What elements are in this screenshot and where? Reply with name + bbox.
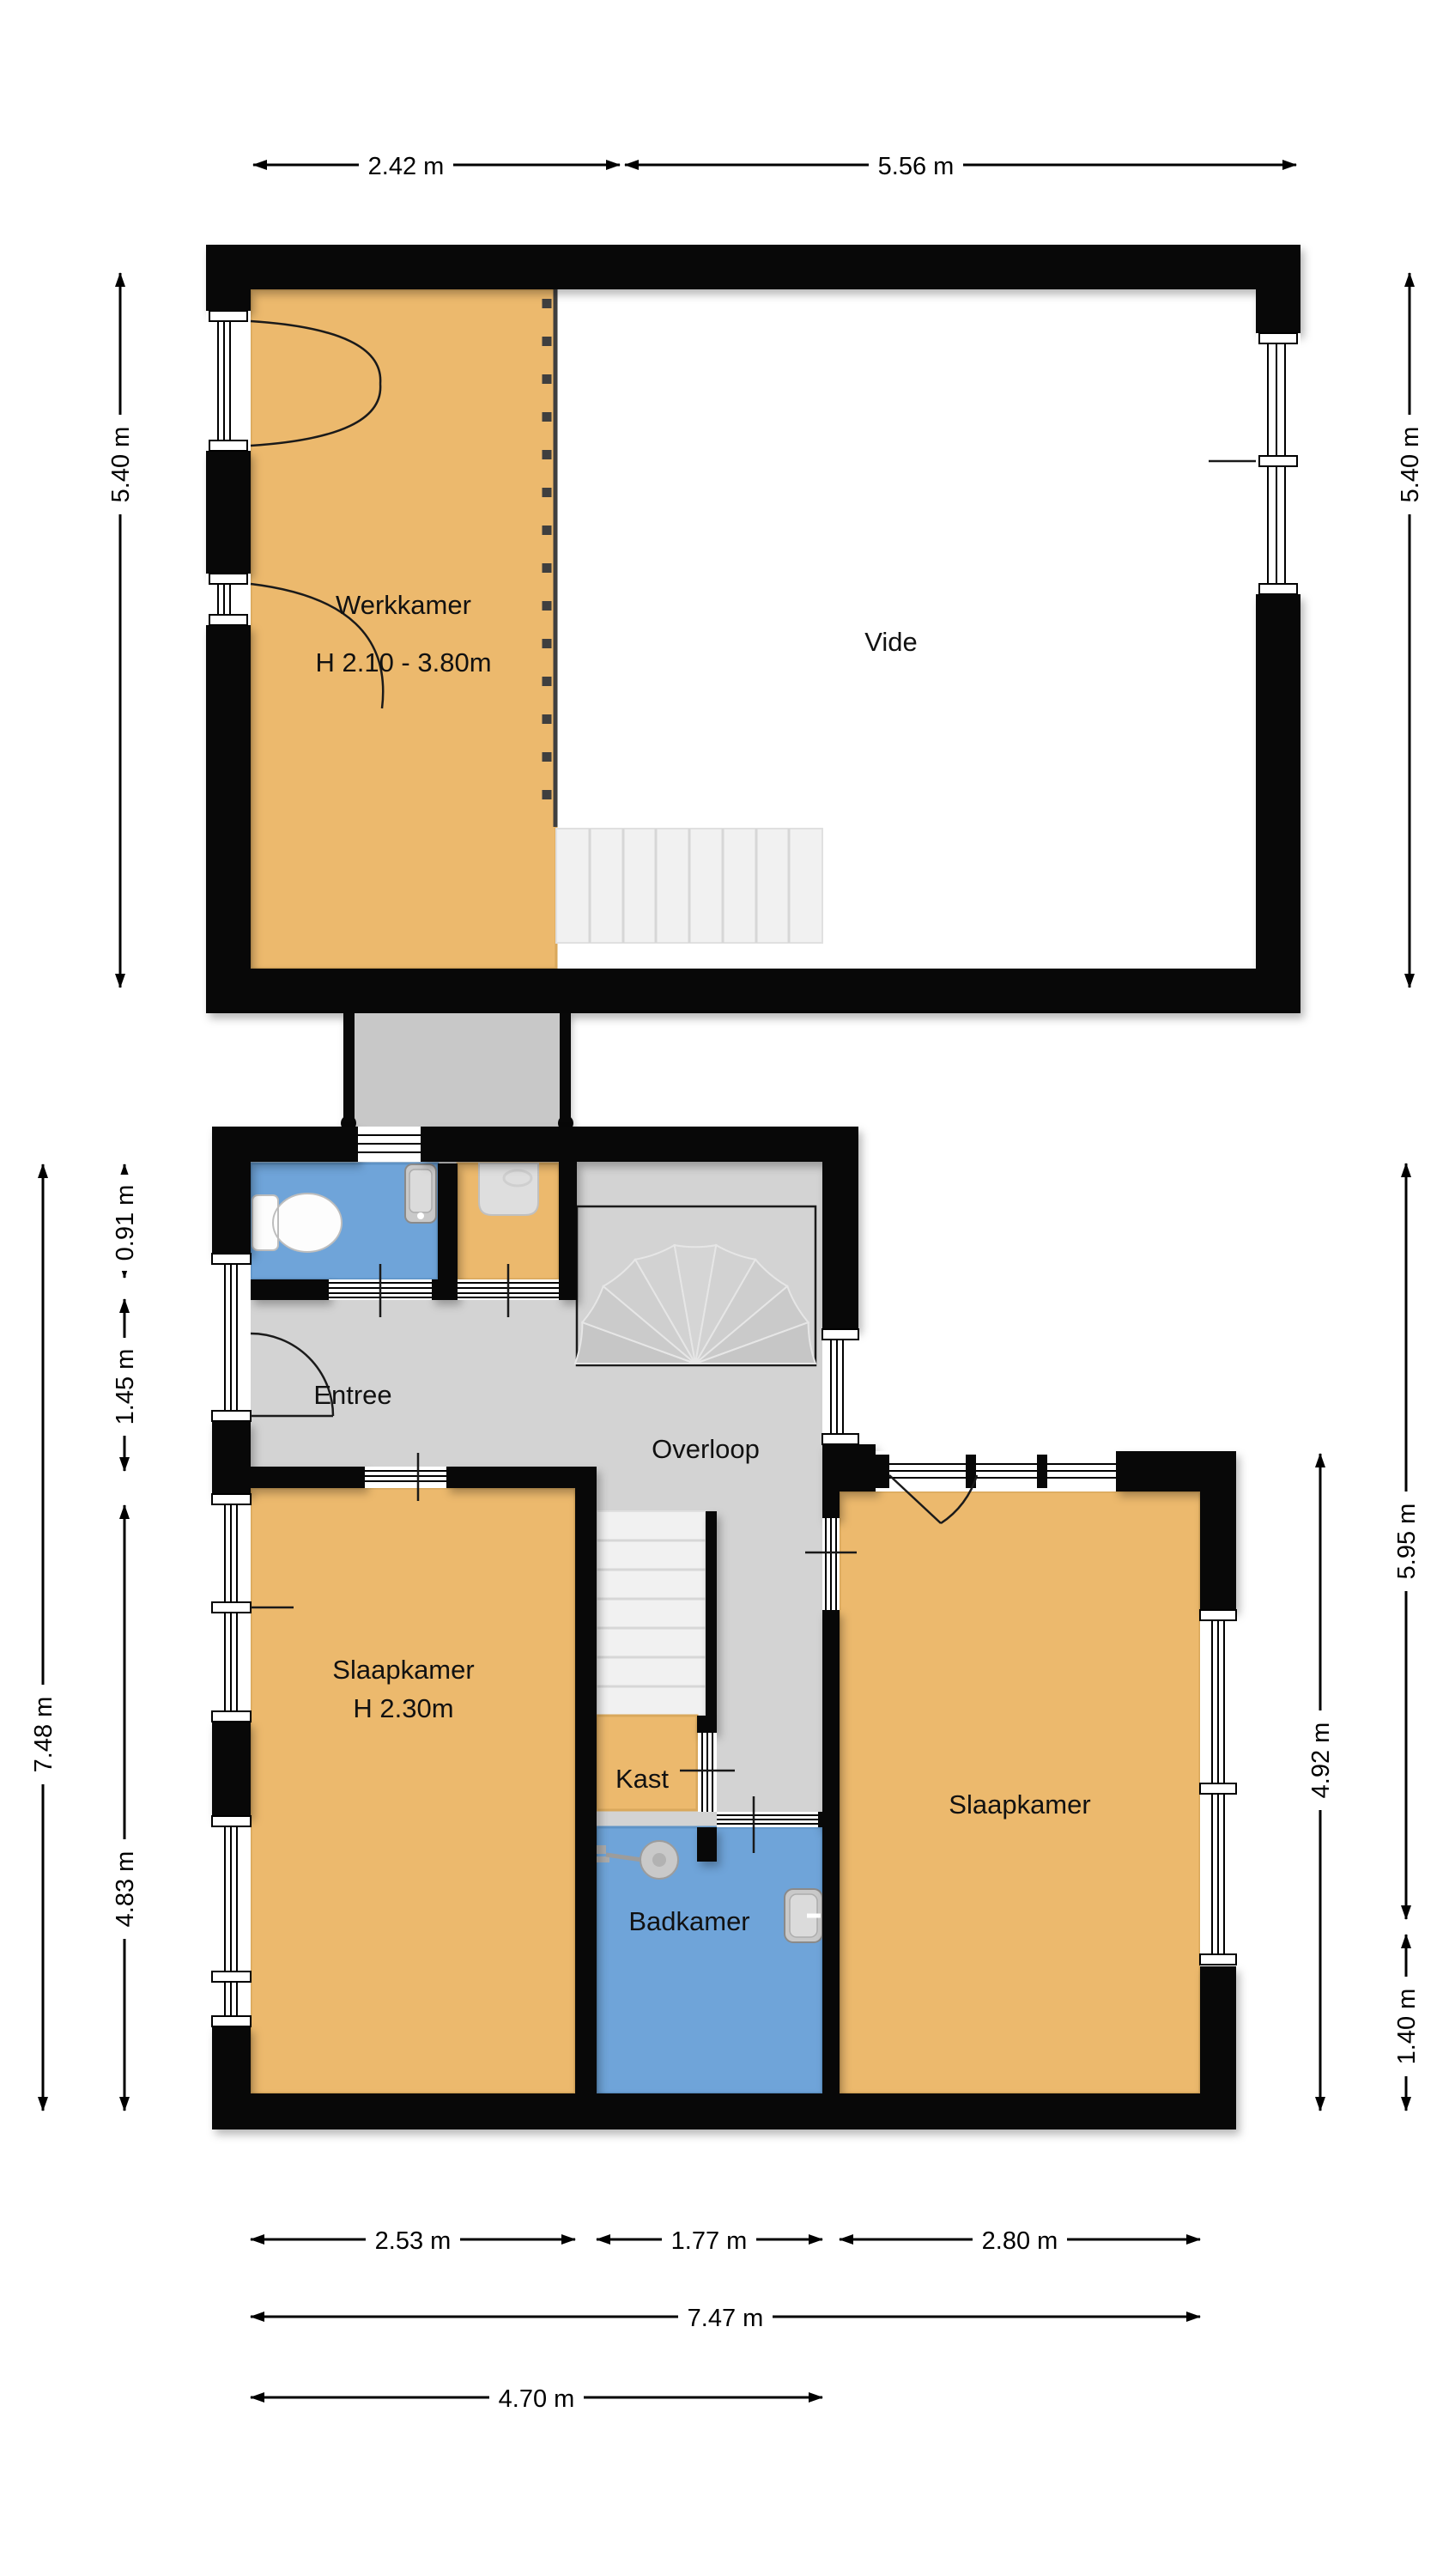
wall	[251, 1467, 365, 1488]
slaapkamer-left-height-label: H 2.30m	[353, 1693, 453, 1723]
slaapkamer-right-label: Slaapkamer	[949, 1789, 1090, 1820]
wall	[1256, 594, 1300, 969]
room-badkamer	[597, 1827, 822, 2093]
wall	[706, 1511, 717, 1733]
dim-lower-left-total: 7.48 m	[30, 1697, 58, 1773]
room-slaapkamer-left	[251, 1488, 575, 2093]
window-lower-right-upper	[822, 1329, 858, 1444]
wall	[212, 1722, 251, 1816]
wall	[822, 1127, 858, 1329]
wall	[446, 1467, 577, 1488]
wall	[822, 1492, 840, 1518]
floorplan-page: Werkkamer H 2.10 - 3.80m Vide	[0, 0, 1449, 2576]
badkamer-label: Badkamer	[628, 1906, 749, 1936]
wall	[559, 1162, 577, 1300]
wall	[212, 2093, 1236, 2129]
wall	[1256, 289, 1300, 333]
wall	[822, 1610, 840, 2093]
werkkamer-height-label: H 2.10 - 3.80m	[315, 647, 491, 677]
wall	[697, 1827, 717, 1862]
dim-upper-left: 5.40 m	[107, 427, 135, 503]
upper-floor-plan: Werkkamer H 2.10 - 3.80m Vide	[206, 245, 1300, 1013]
dim-lower-left-bedroom: 4.83 m	[112, 1851, 139, 1928]
floorplan-canvas: Werkkamer H 2.10 - 3.80m Vide	[0, 0, 1449, 2576]
dim-lower-left-wc: 0.91 m	[112, 1185, 139, 1261]
wall	[1200, 1451, 1236, 1610]
wall	[206, 245, 1300, 289]
wall	[432, 1279, 458, 1300]
window-wing-right	[1200, 1610, 1236, 1966]
room-werkkamer	[251, 289, 556, 969]
appliance-icon	[479, 1163, 538, 1215]
dim-bottom-main: 4.70 m	[499, 2385, 575, 2413]
window-lower-top	[358, 1127, 421, 1162]
wall	[575, 1467, 597, 2129]
dim-bottom-left: 2.53 m	[375, 2227, 452, 2255]
bathroom-sink-icon	[785, 1889, 822, 1942]
dim-lower-right-total: 5.95 m	[1393, 1504, 1421, 1580]
dim-bottom-middle: 1.77 m	[671, 2227, 748, 2255]
toilet-icon	[252, 1194, 342, 1252]
wall	[206, 969, 1300, 1013]
wall	[822, 1444, 876, 1492]
overloop-label: Overloop	[652, 1434, 760, 1464]
wall	[1200, 1966, 1236, 2093]
dim-upper-right: 5.40 m	[1397, 427, 1424, 503]
wall	[438, 1163, 458, 1279]
wall	[206, 625, 251, 969]
upper-stairs	[556, 829, 822, 943]
dim-lower-left-entree: 1.45 m	[112, 1349, 139, 1425]
dim-lower-right-bottom: 1.40 m	[1393, 1989, 1421, 2065]
wc-sink-icon	[405, 1164, 436, 1223]
wall	[212, 1421, 251, 1494]
spiral-staircase	[575, 1206, 815, 1365]
dim-top-right: 5.56 m	[878, 153, 955, 180]
werkkamer-label: Werkkamer	[336, 590, 471, 620]
dim-bottom-right: 2.80 m	[982, 2227, 1058, 2255]
wall	[212, 1162, 251, 1254]
window-lower-left-2	[212, 1816, 251, 2026]
wall	[206, 289, 251, 311]
entree-label: Entree	[313, 1380, 391, 1410]
wall	[421, 1127, 858, 1162]
wall	[212, 1127, 358, 1162]
kast-label: Kast	[615, 1764, 669, 1794]
dim-top-left: 2.42 m	[368, 153, 445, 180]
floor-connector	[341, 1013, 573, 1132]
wall	[251, 1279, 329, 1300]
wall	[206, 451, 251, 574]
slaapkamer-left-label: Slaapkamer	[332, 1655, 474, 1685]
vide-label: Vide	[864, 627, 918, 657]
dim-lower-right-bedroom: 4.92 m	[1307, 1722, 1335, 1799]
dim-bottom-total: 7.47 m	[688, 2305, 764, 2332]
wall	[697, 1716, 717, 1733]
lower-floor-plan: Entree Overloop Slaapkamer H 2.30m Kast …	[212, 1127, 1236, 2129]
room-kast	[597, 1716, 697, 1810]
lower-stairs	[597, 1511, 706, 1716]
